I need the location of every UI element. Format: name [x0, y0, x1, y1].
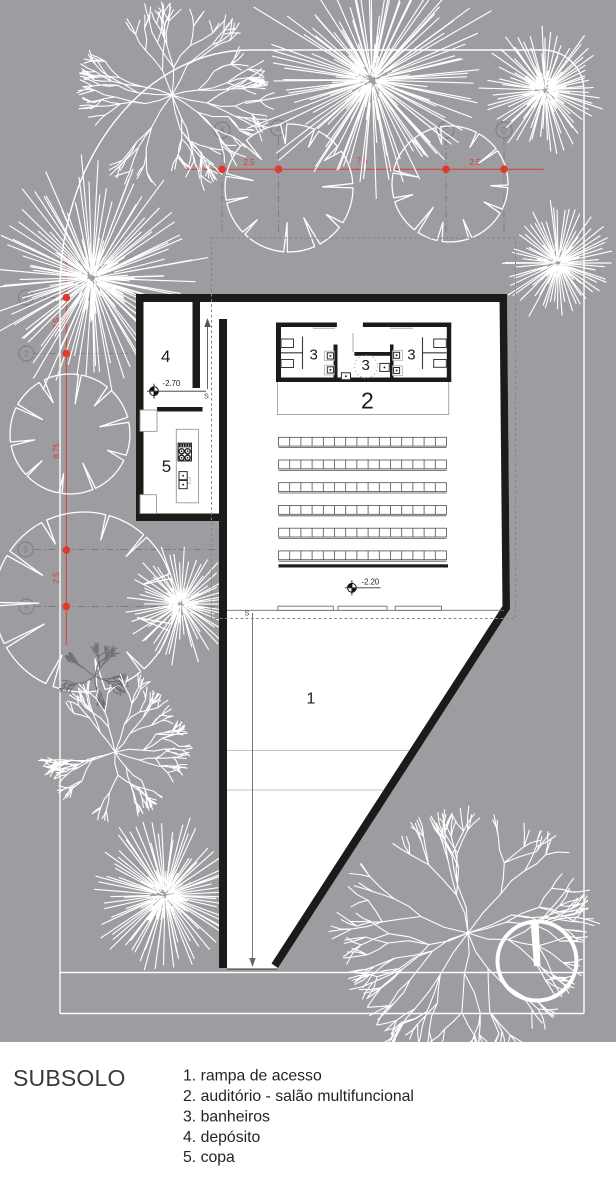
svg-text:2.5: 2.5 [243, 158, 255, 167]
svg-text:S: S [204, 392, 209, 401]
svg-text:4. depósito: 4. depósito [183, 1129, 261, 1146]
svg-text:3: 3 [310, 347, 318, 364]
svg-text:1. rampa de acesso: 1. rampa de acesso [183, 1068, 322, 1085]
svg-text:2: 2 [361, 388, 374, 414]
svg-text:3: 3 [362, 357, 370, 374]
svg-text:5: 5 [162, 457, 171, 476]
svg-text:S: S [245, 609, 250, 618]
svg-text:-2.20: -2.20 [362, 577, 380, 586]
svg-text:4: 4 [161, 347, 170, 366]
svg-text:1: 1 [307, 690, 316, 707]
svg-text:SUBSOLO: SUBSOLO [13, 1065, 126, 1091]
svg-text:3: 3 [23, 546, 28, 555]
svg-text:2: 2 [24, 350, 29, 359]
svg-text:5. copa: 5. copa [183, 1149, 235, 1166]
svg-text:-2.70: -2.70 [163, 379, 181, 388]
svg-text:3. banheiros: 3. banheiros [183, 1109, 270, 1126]
svg-text:3: 3 [407, 347, 415, 364]
svg-text:2. auditório - salão multifunc: 2. auditório - salão multifuncional [183, 1088, 414, 1105]
